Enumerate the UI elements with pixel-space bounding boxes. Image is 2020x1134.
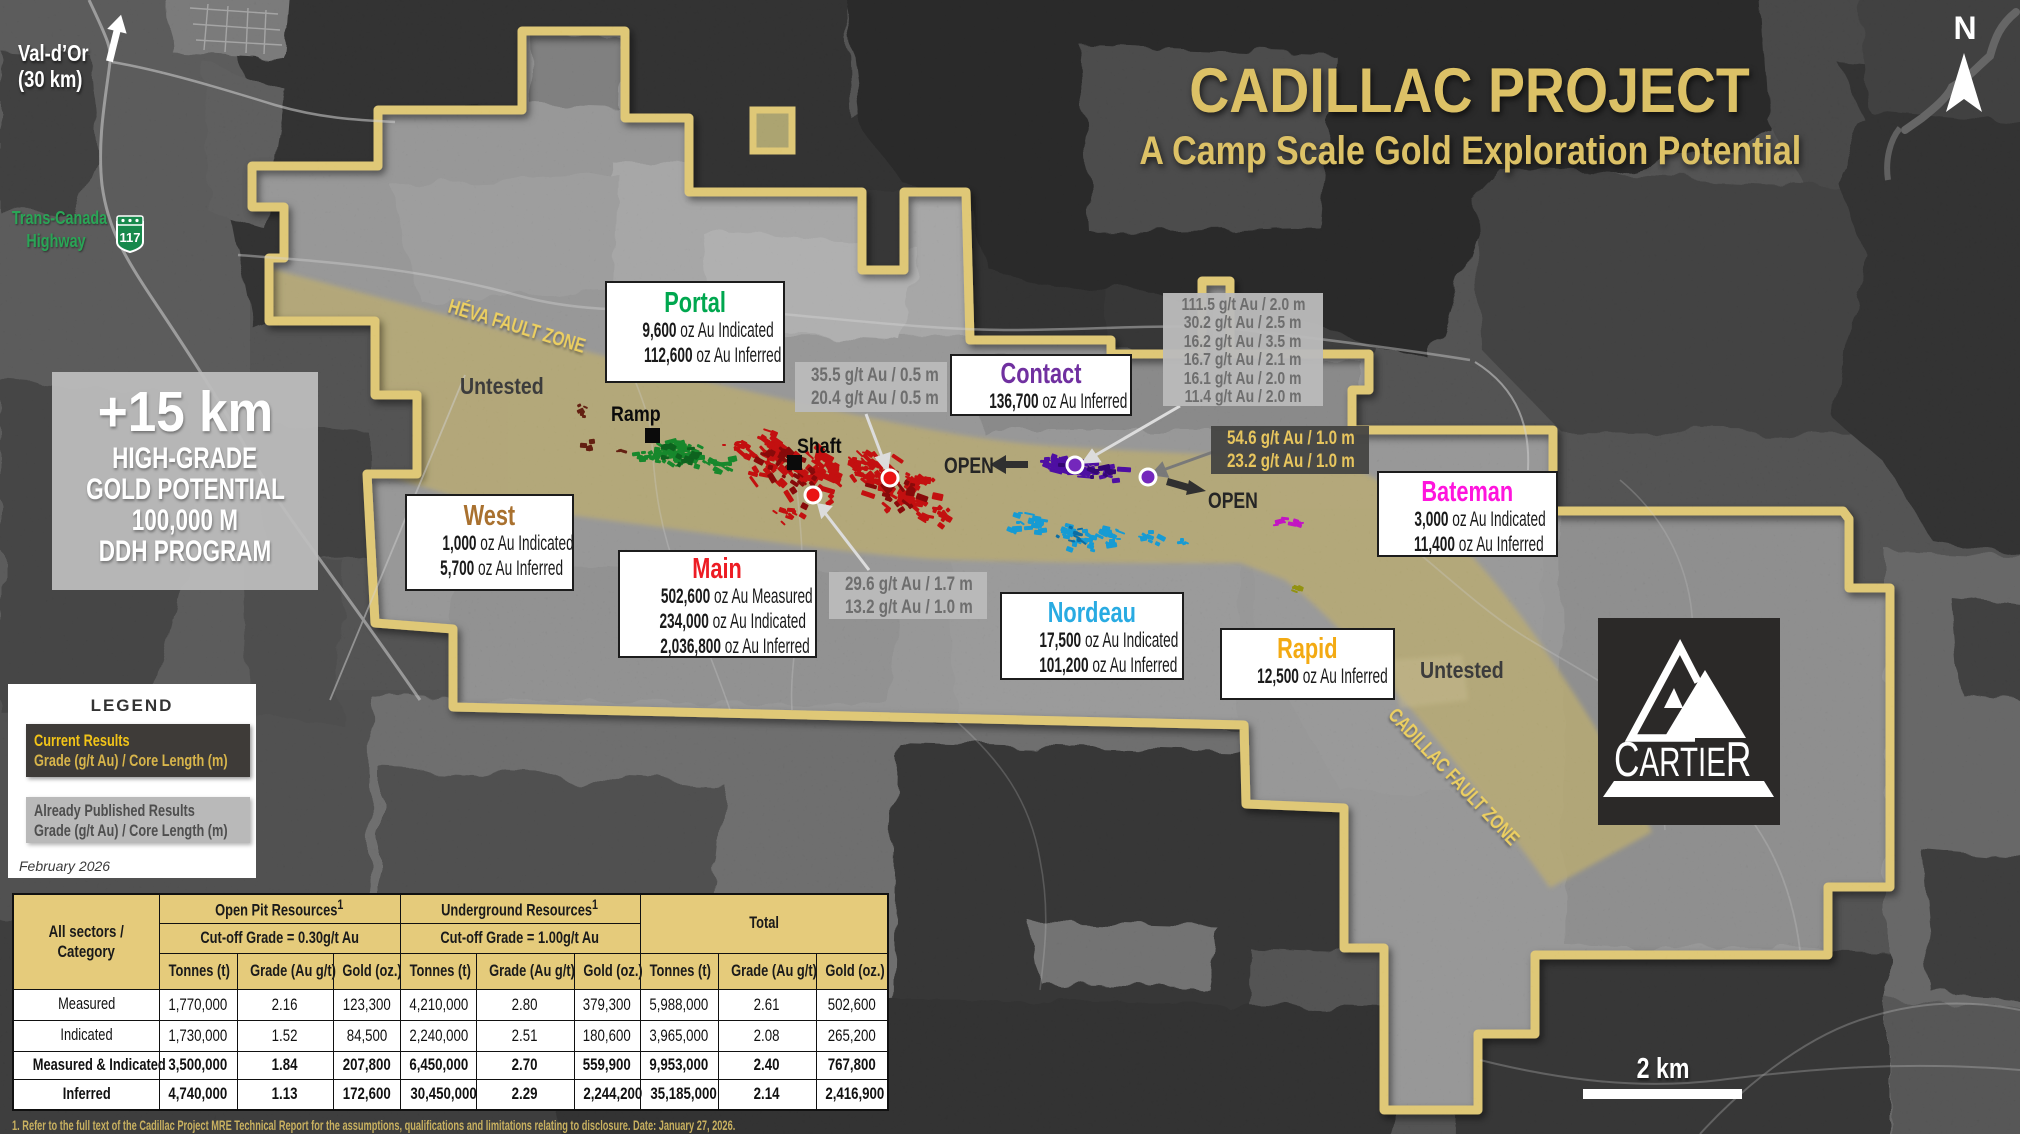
svg-text:117: 117: [120, 230, 141, 245]
svg-text:CARTIER: CARTIER: [1614, 733, 1751, 787]
